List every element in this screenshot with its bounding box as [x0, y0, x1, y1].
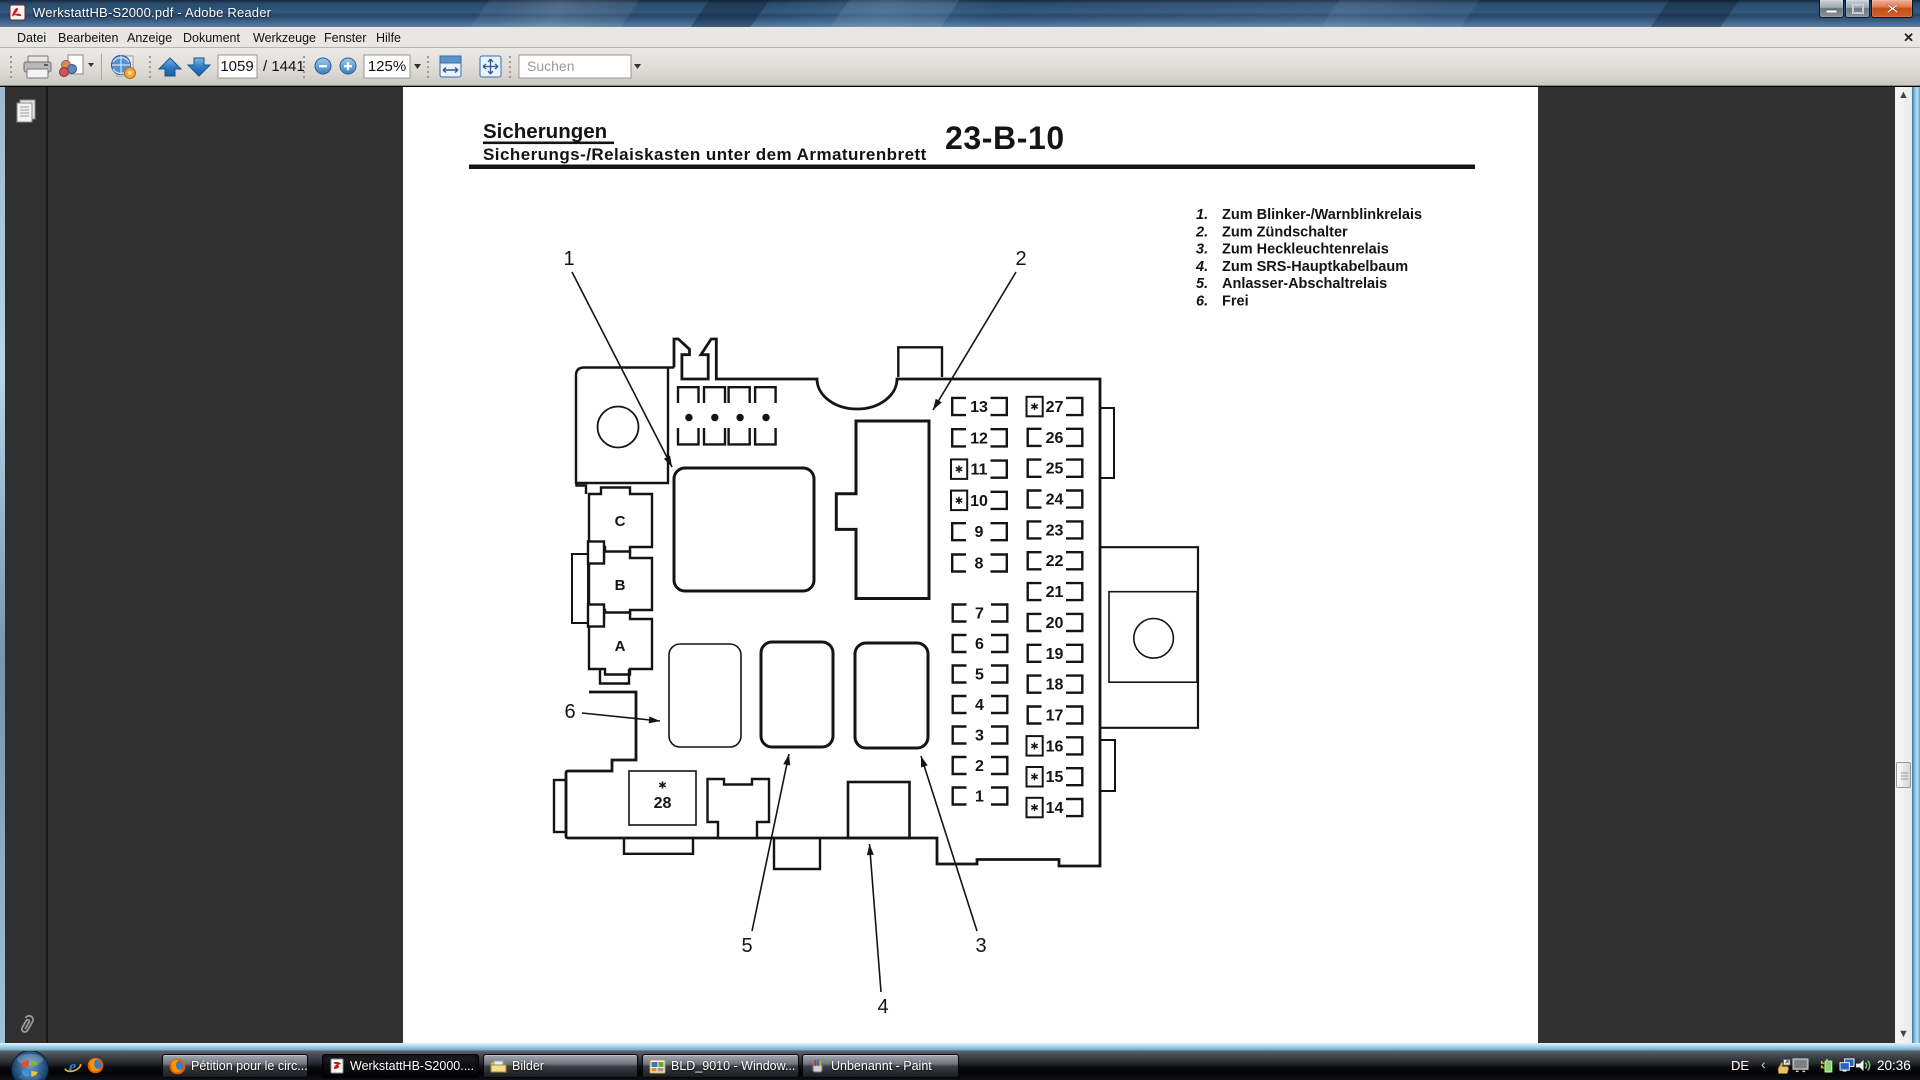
svg-text:Suchen: Suchen — [527, 58, 574, 74]
svg-text:Sicherungs-/Relaiskasten unter: Sicherungs-/Relaiskasten unter dem Armat… — [483, 145, 927, 164]
svg-text:Zum SRS-Hauptkabelbaum: Zum SRS-Hauptkabelbaum — [1222, 259, 1408, 275]
svg-text:9: 9 — [975, 524, 984, 541]
svg-text:C: C — [615, 513, 626, 530]
svg-text:21: 21 — [1046, 584, 1064, 601]
svg-text:22: 22 — [1046, 553, 1064, 570]
svg-text:4.: 4. — [1195, 259, 1208, 275]
svg-text:24: 24 — [1046, 492, 1064, 509]
svg-text:16: 16 — [1046, 738, 1064, 755]
svg-text:6: 6 — [975, 636, 984, 653]
svg-text:2: 2 — [975, 758, 984, 775]
svg-text:14: 14 — [1046, 800, 1064, 817]
svg-text:27: 27 — [1046, 399, 1064, 416]
svg-text:17: 17 — [1046, 708, 1064, 725]
svg-text:23: 23 — [1046, 522, 1064, 539]
svg-text:25: 25 — [1046, 461, 1064, 478]
svg-text:23-B-10: 23-B-10 — [945, 120, 1065, 156]
svg-text:1: 1 — [975, 789, 984, 806]
svg-text:A: A — [615, 638, 626, 655]
svg-text:20: 20 — [1046, 615, 1064, 632]
svg-text:Zum Zündschalter: Zum Zündschalter — [1222, 224, 1348, 240]
svg-text:Frei: Frei — [1222, 294, 1249, 310]
svg-text:26: 26 — [1046, 430, 1064, 447]
svg-text:10: 10 — [970, 493, 988, 510]
svg-text:5: 5 — [741, 935, 752, 957]
svg-text:3: 3 — [975, 728, 984, 745]
svg-text:13: 13 — [970, 399, 988, 416]
svg-text:Sicherungen: Sicherungen — [483, 120, 607, 143]
svg-text:5: 5 — [975, 667, 984, 684]
svg-text:8: 8 — [975, 556, 984, 573]
svg-text:12: 12 — [970, 430, 988, 447]
svg-text:18: 18 — [1046, 677, 1064, 694]
svg-text:3.: 3. — [1196, 242, 1208, 258]
svg-text:Zum Blinker-/Warnblinkrelais: Zum Blinker-/Warnblinkrelais — [1222, 207, 1422, 223]
svg-text:11: 11 — [971, 462, 988, 479]
svg-text:1059: 1059 — [220, 58, 253, 75]
svg-text:4: 4 — [975, 697, 984, 714]
svg-text:4: 4 — [877, 996, 888, 1018]
svg-text:B: B — [615, 577, 626, 594]
svg-text:Zum Heckleuchtenrelais: Zum Heckleuchtenrelais — [1222, 242, 1389, 258]
svg-text:Anlasser-Abschaltrelais: Anlasser-Abschaltrelais — [1222, 276, 1387, 292]
svg-text:6.: 6. — [1196, 294, 1208, 310]
svg-text:28: 28 — [654, 795, 672, 812]
svg-text:/ 1441: / 1441 — [263, 58, 305, 75]
svg-text:7: 7 — [975, 606, 984, 623]
svg-text:125%: 125% — [368, 58, 406, 75]
svg-text:2: 2 — [1015, 248, 1026, 270]
svg-text:3: 3 — [975, 935, 986, 957]
svg-text:1: 1 — [563, 248, 574, 270]
svg-text:1.: 1. — [1196, 207, 1208, 223]
svg-text:6: 6 — [564, 701, 575, 723]
svg-text:19: 19 — [1046, 646, 1064, 663]
svg-text:15: 15 — [1046, 769, 1064, 786]
svg-text:5.: 5. — [1196, 276, 1208, 292]
svg-text:2.: 2. — [1195, 224, 1208, 240]
